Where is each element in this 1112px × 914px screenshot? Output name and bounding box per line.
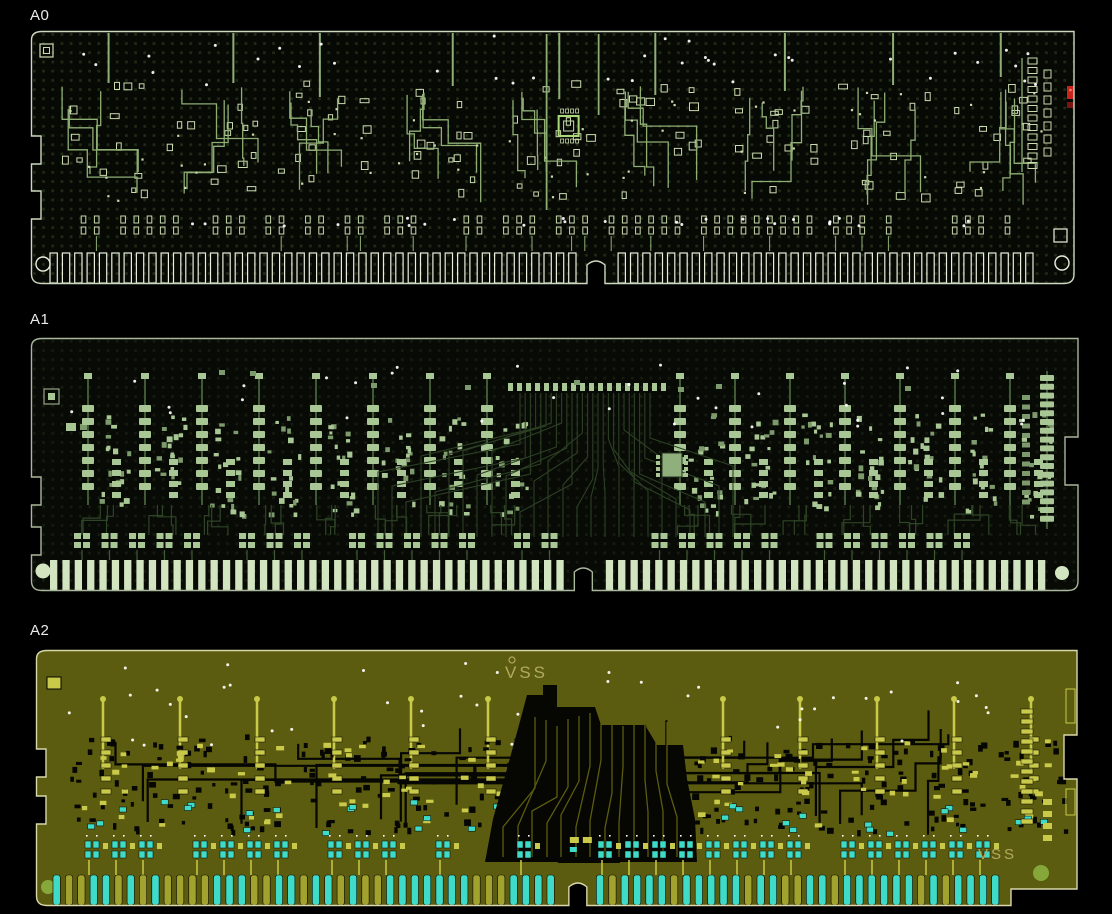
layer-label-a0: A0 bbox=[30, 7, 49, 24]
edge-fingers bbox=[50, 560, 1045, 590]
mounting-hole bbox=[36, 564, 51, 579]
pcb-board-a1 bbox=[30, 337, 1086, 592]
edge-fingers bbox=[53, 875, 999, 905]
vss-label: VSS bbox=[505, 663, 548, 682]
mounting-hole bbox=[1055, 566, 1069, 580]
pcb-board-a0 bbox=[30, 30, 1082, 285]
fiducial-mark bbox=[47, 677, 61, 689]
layer-label-a2: A2 bbox=[30, 622, 49, 639]
red-marker-component bbox=[1067, 86, 1074, 108]
layer-label-a1: A1 bbox=[30, 311, 49, 328]
pcb-board-a2: VSSVSS bbox=[35, 649, 1085, 907]
vss-label: VSS bbox=[978, 846, 1017, 863]
pcb-layer-views: A0 A1 A2 VSSVSS bbox=[0, 0, 1112, 914]
mounting-hole bbox=[1033, 865, 1049, 881]
